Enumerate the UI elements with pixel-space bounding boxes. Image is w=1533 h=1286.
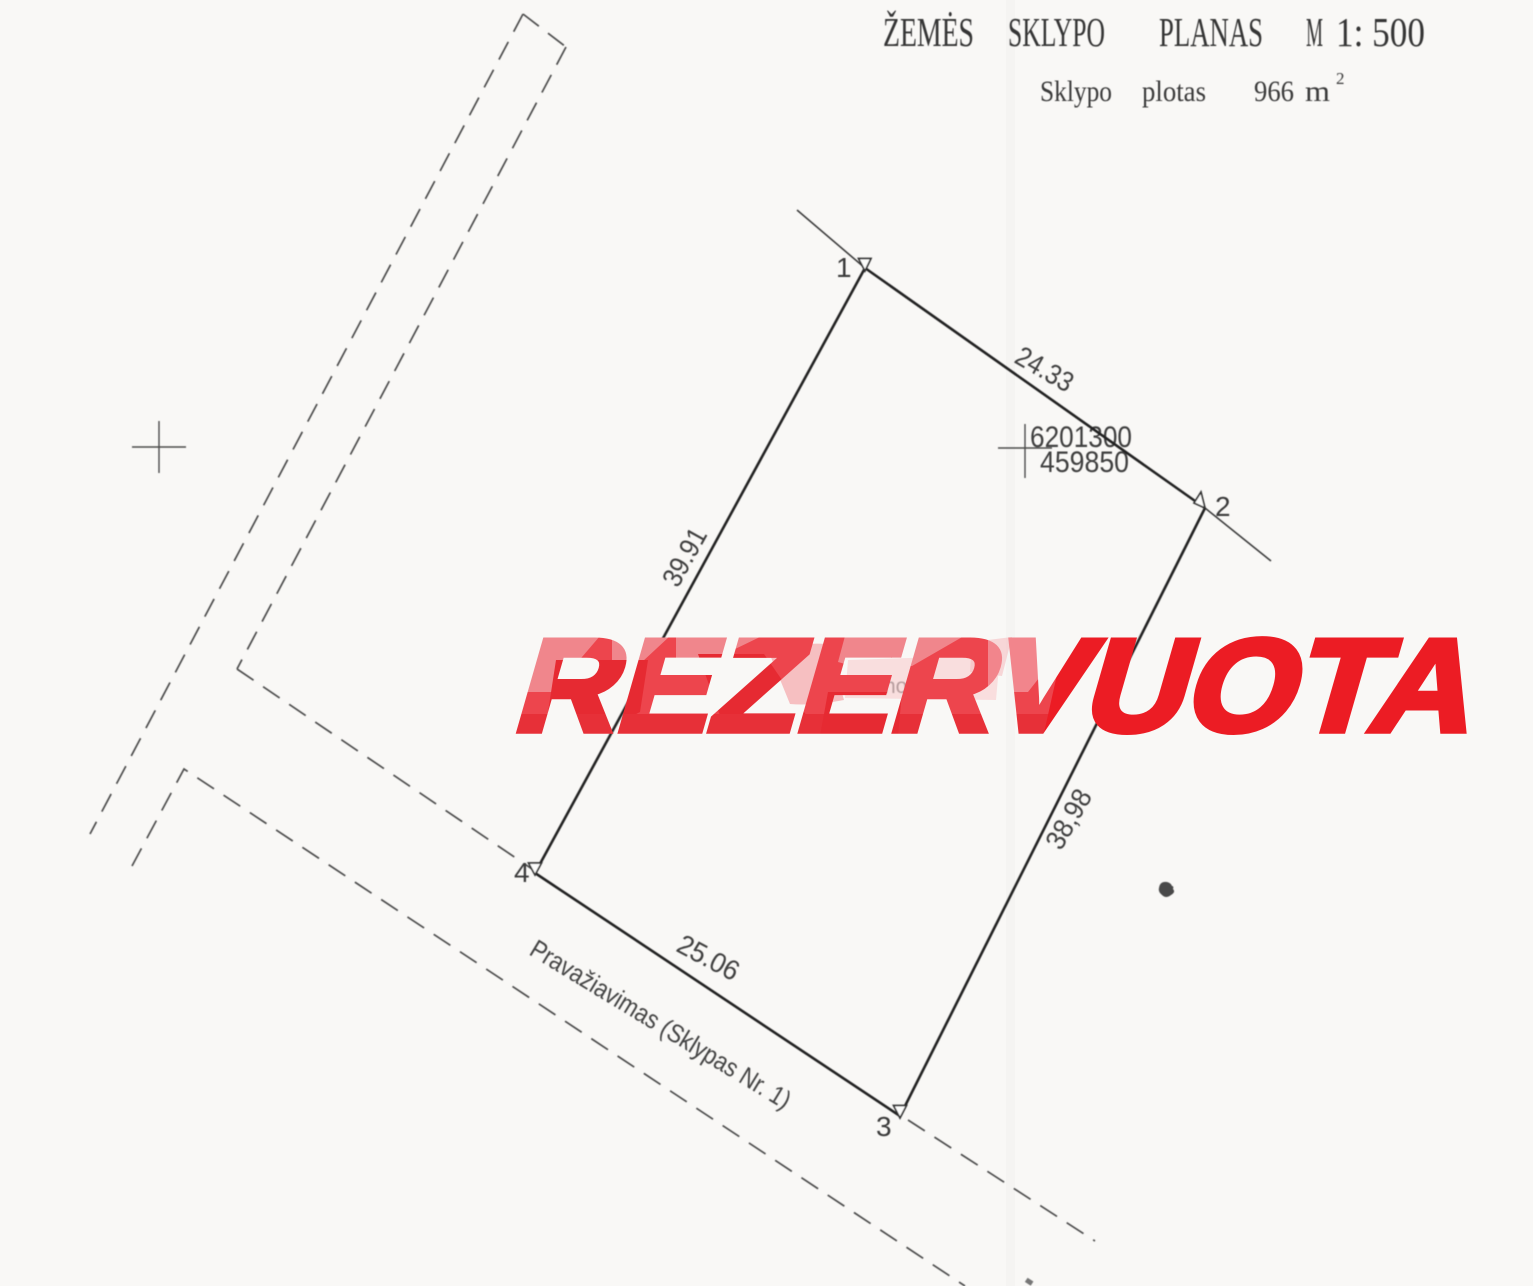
- svg-text:SKLYPO: SKLYPO: [1008, 9, 1105, 55]
- svg-text:1: 1: [836, 252, 852, 283]
- svg-text:459850: 459850: [1040, 446, 1129, 479]
- svg-text:plotas: plotas: [1142, 75, 1206, 108]
- svg-text:966: 966: [1254, 75, 1294, 108]
- svg-text:2: 2: [1336, 69, 1345, 88]
- svg-text:Sklypo: Sklypo: [1040, 75, 1112, 108]
- svg-text:PLANAS: PLANAS: [1159, 9, 1263, 55]
- svg-text:M: M: [1306, 9, 1323, 55]
- svg-text:4: 4: [514, 857, 530, 888]
- svg-text:3: 3: [876, 1111, 892, 1142]
- svg-text:1: 500: 1: 500: [1336, 9, 1425, 55]
- svg-text:2: 2: [1215, 491, 1231, 522]
- svg-text:m: m: [1305, 75, 1330, 108]
- svg-text:ŽEMĖS: ŽEMĖS: [883, 9, 974, 55]
